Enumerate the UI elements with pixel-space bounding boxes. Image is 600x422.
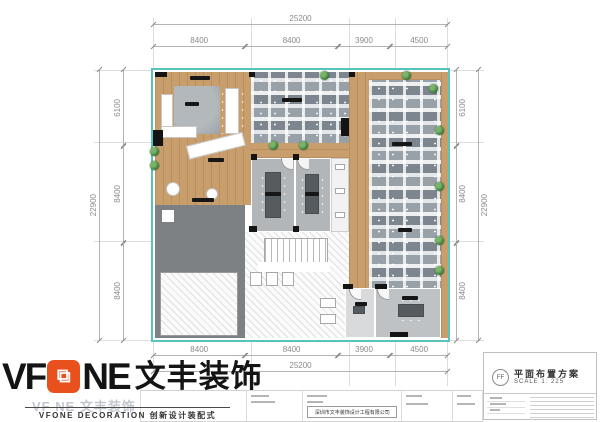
room-label	[305, 192, 319, 196]
plant-icon	[150, 161, 159, 170]
field-value	[406, 403, 428, 405]
dim-value: 3900	[355, 37, 373, 45]
title-strip-cell	[402, 391, 452, 421]
logo-text-ne: NE	[82, 358, 129, 395]
chairs	[241, 90, 244, 134]
room-label	[402, 296, 418, 300]
title-strip-cell	[247, 391, 303, 421]
company-name: 深圳市文丰装饰设计工程有限公司	[307, 406, 397, 418]
chairs	[261, 174, 264, 216]
dim-right-segments: 6100 8400 8400	[456, 70, 468, 340]
plant-icon	[435, 266, 444, 275]
wall-segment	[293, 154, 299, 160]
drawing-scale: SCALE 1: 225	[514, 379, 564, 385]
dim-value: 22900	[481, 194, 489, 216]
divider	[484, 393, 596, 394]
field-label	[490, 397, 502, 399]
dim-value: 8400	[459, 282, 467, 300]
sink-icon	[320, 298, 336, 308]
dim-top-segments: 8400 8400 3900 4500	[153, 36, 448, 47]
zone-open-office-right	[369, 80, 441, 290]
plant-icon	[320, 71, 329, 80]
chairs	[399, 319, 423, 322]
chairs	[221, 90, 224, 134]
dim-value: 8400	[190, 346, 208, 354]
dim-segment: 8400	[112, 146, 124, 243]
dim-segment: 4500	[390, 345, 448, 356]
notes-text	[530, 397, 594, 418]
field-label	[490, 409, 500, 411]
wall-segment	[375, 284, 387, 289]
chairs	[301, 176, 304, 214]
dim-value: 8400	[190, 37, 208, 45]
chairs	[321, 176, 324, 214]
dim-segment: 3900	[338, 345, 390, 356]
dim-value: 8400	[459, 185, 467, 203]
wall-segment	[341, 118, 349, 136]
dim-segment: 6100	[112, 70, 124, 146]
room-label	[265, 192, 281, 196]
desk	[353, 306, 365, 314]
dim-top-total: 25200	[153, 14, 448, 25]
dim-segment: 22900	[88, 70, 100, 340]
floor-plan	[151, 68, 450, 342]
field-value	[251, 401, 275, 403]
toilet-stall-icon	[266, 272, 278, 286]
plant-icon	[435, 126, 444, 135]
toilet-stall-icon	[250, 272, 262, 286]
room-label	[190, 76, 210, 80]
dim-segment: 22900	[478, 70, 490, 340]
table	[225, 88, 239, 134]
dim-segment: 8400	[456, 146, 468, 243]
floor-plan-sheet: 25200 8400 8400 3900 4500 8400 8400 3900…	[0, 0, 600, 422]
dim-value: 8400	[114, 185, 122, 203]
dim-left-total: 22900	[88, 70, 100, 340]
dim-segment: 8400	[112, 243, 124, 340]
sink-icon	[320, 314, 336, 324]
title-strip-cell: 深圳市文丰装饰设计工程有限公司	[303, 391, 402, 421]
dim-value: 8400	[114, 282, 122, 300]
plant-icon	[435, 236, 444, 245]
room-label	[185, 102, 199, 106]
plant-icon	[402, 71, 411, 80]
logo-cube-icon: ⧉	[47, 360, 80, 393]
chairs	[283, 174, 286, 216]
dim-segment: 8400	[245, 345, 337, 356]
table-line	[487, 407, 525, 408]
fixture-icon	[335, 164, 345, 170]
dim-segment: 8400	[456, 243, 468, 340]
table-line	[487, 413, 525, 414]
wall-segment	[390, 332, 408, 337]
dim-value: 6100	[459, 99, 467, 117]
room-label	[282, 98, 302, 102]
field-label	[251, 395, 269, 397]
room-label	[208, 158, 224, 162]
wall-segment	[349, 72, 355, 77]
wall-segment	[343, 284, 353, 289]
dim-segment: 8400	[153, 345, 245, 356]
dim-segment: 8400	[245, 36, 337, 47]
company-logo: VF ⧉ NE 文丰装饰	[2, 358, 263, 395]
plant-icon	[269, 141, 278, 150]
title-strip-cell	[453, 391, 483, 421]
stair-icon	[264, 238, 328, 264]
view-marker-circle: FF	[492, 369, 509, 386]
room-label	[355, 302, 367, 306]
meeting-table	[398, 304, 424, 317]
dim-value: 8400	[283, 346, 301, 354]
dim-value: 25200	[289, 362, 311, 370]
dim-value: 6100	[114, 99, 122, 117]
field-label	[457, 395, 471, 397]
dim-value: 8400	[283, 37, 301, 45]
fixture-icon	[335, 188, 345, 194]
field-label	[406, 395, 422, 397]
dim-segment: 3900	[338, 36, 390, 47]
dim-segment: 4500	[390, 36, 448, 47]
dim-left-segments: 6100 8400 8400	[112, 70, 124, 340]
table-line	[487, 401, 525, 402]
dim-segment: 6100	[456, 70, 468, 146]
core-blank	[258, 262, 330, 272]
logo-text-cn: 文丰装饰	[135, 361, 263, 392]
dim-value: 25200	[289, 15, 311, 23]
drawing-title-block: FF 平面布置方案 SCALE 1: 225	[483, 352, 597, 420]
company-tagline: VFONE DECORATION 创新设计装配式	[25, 407, 230, 421]
dim-value: 3900	[355, 346, 373, 354]
plant-icon	[150, 147, 159, 156]
wall-segment	[293, 226, 299, 232]
field-label	[490, 403, 506, 405]
room-label	[398, 228, 412, 232]
plant-icon	[299, 141, 308, 150]
field-label	[307, 395, 327, 397]
dim-segment: 8400	[153, 36, 245, 47]
wall-segment	[155, 72, 167, 77]
zone-open-office-top	[251, 72, 349, 143]
dim-value: 4500	[410, 346, 428, 354]
logo-text-vf: VF	[2, 358, 45, 395]
room-label	[392, 142, 412, 146]
field-value	[307, 401, 323, 403]
round-table	[166, 182, 180, 196]
dim-segment: 25200	[153, 14, 448, 25]
fixture-icon	[335, 212, 345, 218]
wall-segment	[153, 130, 163, 146]
sofa	[161, 126, 197, 138]
dim-bottom-segments: 8400 8400 3900 4500	[153, 345, 448, 356]
room-label	[192, 198, 214, 202]
plant-icon	[435, 182, 444, 191]
column	[162, 210, 174, 222]
field-value	[457, 403, 475, 405]
toilet-stall-icon	[282, 272, 294, 286]
plant-icon	[429, 84, 438, 93]
core-shaft	[160, 272, 238, 336]
dim-value: 4500	[410, 37, 428, 45]
corridor-vertical	[349, 72, 369, 288]
wall-segment	[249, 72, 255, 77]
wood-band-right	[441, 72, 448, 338]
wall-segment	[249, 226, 257, 232]
dim-value: 22900	[90, 194, 98, 216]
wall-segment	[251, 154, 257, 160]
dim-right-total: 22900	[478, 70, 490, 340]
